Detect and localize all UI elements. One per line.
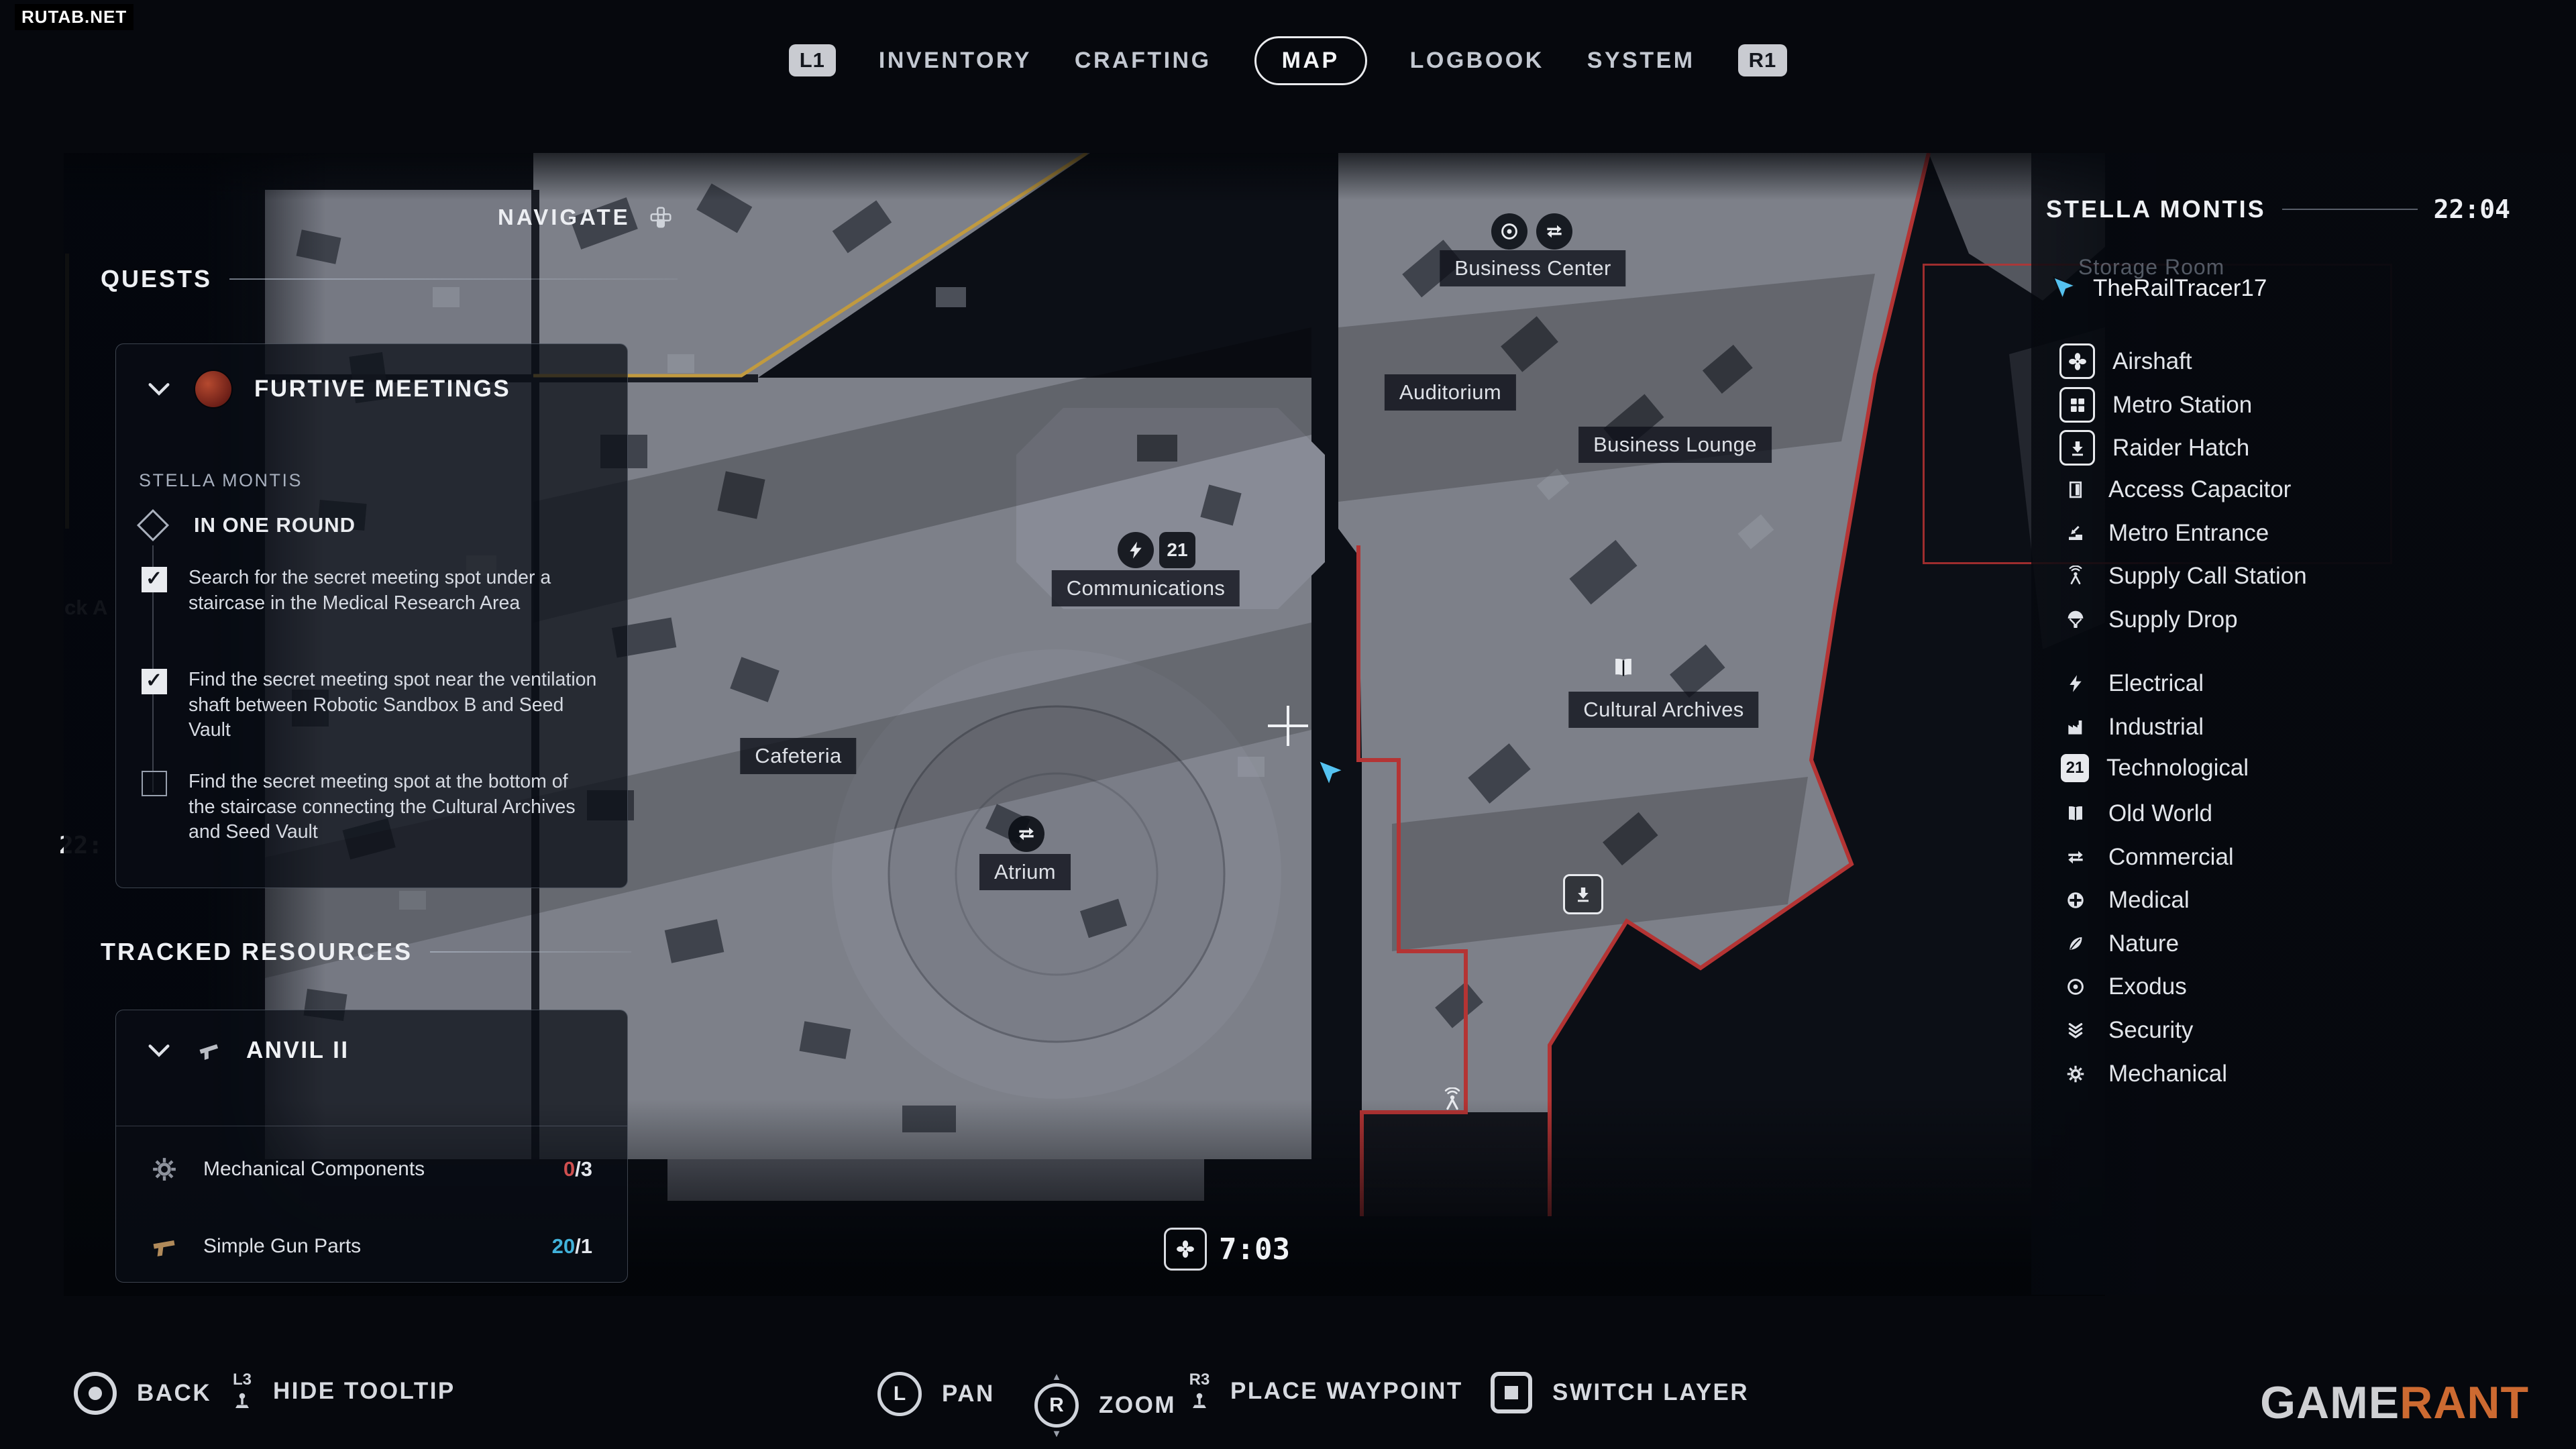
hatch-icon — [2059, 430, 2095, 466]
quests-section-title: QUESTS — [101, 265, 212, 293]
antenna-icon — [1440, 1087, 1465, 1113]
navigate-label: NAVIGATE — [498, 205, 631, 230]
resource-group-name: ANVIL II — [246, 1037, 350, 1064]
divider — [2282, 209, 2418, 210]
swap-arrows-icon — [2059, 841, 2091, 873]
tech-icon: 21 — [1159, 532, 1195, 568]
right-bumper-button[interactable]: R1 — [1738, 44, 1788, 76]
fan-icon — [2059, 343, 2095, 379]
legend-item-metro-station: Metro Station — [2059, 387, 2252, 423]
region-name: STELLA MONTIS — [2046, 195, 2266, 223]
resource-count: 20/1 — [552, 1234, 592, 1258]
site-watermark: RUTAB.NET — [15, 4, 133, 30]
quest-objective: Find the secret meeting spot at the bott… — [142, 769, 598, 845]
objective-checkbox-checked — [142, 567, 167, 592]
player-marker-row: TheRailTracer17 — [2051, 275, 2267, 302]
switch-layer-button[interactable]: SWITCH LAYER — [1491, 1372, 1749, 1413]
quest-location: STELLA MONTIS — [139, 470, 303, 491]
top-nav: L1 INVENTORY CRAFTING MAP LOGBOOK SYSTEM… — [0, 0, 2576, 121]
quest-objective: Search for the secret meeting spot under… — [142, 566, 598, 616]
circle-button-icon — [74, 1372, 117, 1415]
legend-item-airshaft: Airshaft — [2059, 343, 2192, 379]
grid-icon — [2059, 387, 2095, 423]
controls-bar: BACK L3 HIDE TOOLTIP L PAN ▲ R ▼ ZOOM R3… — [0, 1338, 2576, 1449]
legend-item-raider-hatch: Raider Hatch — [2059, 430, 2249, 466]
resource-count: 0/3 — [563, 1157, 592, 1181]
tab-system[interactable]: SYSTEM — [1587, 48, 1695, 74]
eye-icon — [1491, 213, 1527, 250]
tab-crafting[interactable]: CRAFTING — [1075, 48, 1212, 74]
square-button-icon — [1491, 1372, 1532, 1413]
left-bumper-button[interactable]: L1 — [789, 44, 836, 76]
leaf-icon — [2059, 928, 2091, 959]
resource-row: Simple Gun Parts 20/1 — [150, 1232, 592, 1261]
quest-icon — [195, 371, 231, 407]
legend-item-supply-call-station: Supply Call Station — [2059, 560, 2307, 592]
tracked-resources-card: ANVIL II Mechanical Components 0/3 Simpl… — [115, 1010, 628, 1283]
gun-parts-icon — [148, 1230, 182, 1264]
map-label-business-lounge: Business Lounge — [1578, 427, 1772, 463]
legend-item-metro-entrance: Metro Entrance — [2059, 517, 2269, 549]
resource-group-row[interactable]: ANVIL II — [146, 1037, 350, 1064]
stage-label: IN ONE ROUND — [194, 513, 356, 537]
zoom-button[interactable]: ▲ R ▼ ZOOM — [1034, 1372, 1176, 1439]
chevrons-icon — [2059, 1014, 2091, 1046]
hatch-icon — [1563, 874, 1603, 914]
region-header: STELLA MONTIS 22:04 — [2046, 195, 2553, 224]
antenna-icon — [2059, 560, 2091, 592]
objective-checkbox-unchecked — [142, 771, 167, 796]
weapon-icon — [193, 1034, 225, 1067]
legend-item-exodus: Exodus — [2059, 971, 2187, 1002]
swap-arrows-icon — [1536, 213, 1572, 250]
divider — [229, 278, 678, 280]
back-button[interactable]: BACK — [74, 1372, 211, 1415]
map-label-atrium: Atrium — [979, 854, 1071, 890]
bolt-icon — [1118, 532, 1154, 568]
left-stick-icon: L — [877, 1372, 922, 1416]
gear-icon — [2059, 1058, 2091, 1089]
divider — [116, 1126, 627, 1126]
resource-row: Mechanical Components 0/3 — [150, 1155, 592, 1184]
map-label-auditorium: Auditorium — [1385, 374, 1516, 411]
brand-watermark: GAMERANT — [2260, 1377, 2529, 1429]
divider — [430, 951, 631, 953]
region-time: 22:04 — [2434, 195, 2510, 224]
map-label-cultural-archives: Cultural Archives — [1568, 692, 1758, 728]
legend-item-technological: 21 Technological — [2059, 754, 2249, 782]
tab-inventory[interactable]: INVENTORY — [879, 48, 1032, 74]
quest-card: FURTIVE MEETINGS STELLA MONTIS IN ONE RO… — [115, 343, 628, 888]
tracked-resources-title: TRACKED RESOURCES — [101, 938, 413, 966]
chevron-down-icon[interactable] — [146, 1037, 172, 1064]
book-icon — [1611, 655, 1636, 680]
quest-name: FURTIVE MEETINGS — [254, 376, 511, 402]
legend-item-old-world: Old World — [2059, 798, 2212, 829]
legend-item-access-capacitor: Access Capacitor — [2059, 474, 2291, 505]
corner-arrow-icon — [2059, 517, 2091, 549]
hide-tooltip-button[interactable]: L3 HIDE TOOLTIP — [231, 1372, 455, 1411]
stage-diamond-icon — [137, 509, 169, 541]
pan-button[interactable]: L PAN — [877, 1372, 995, 1416]
legend-item-electrical: Electrical — [2059, 667, 2204, 699]
parachute-icon — [2059, 604, 2091, 635]
legend-item-security: Security — [2059, 1014, 2193, 1046]
legend-item-industrial: Industrial — [2059, 711, 2204, 743]
map-label-cafeteria: Cafeteria — [740, 738, 856, 774]
right-stick-icon: ▲ R ▼ — [1034, 1372, 1079, 1439]
map-label-communications: Communications — [1052, 570, 1240, 606]
bolt-icon — [2059, 667, 2091, 699]
quest-stage-row: IN ONE ROUND — [136, 513, 356, 537]
legend-item-supply-drop: Supply Drop — [2059, 604, 2238, 635]
left-stick-press-icon: L3 — [231, 1372, 253, 1411]
swap-arrows-icon — [1008, 816, 1044, 852]
eye-icon — [2059, 971, 2091, 1002]
map-legend-panel: STELLA MONTIS 22:04 Storage Room TheRail… — [2031, 153, 2576, 1295]
player-name: TheRailTracer17 — [2093, 275, 2267, 302]
dpad-icon — [648, 205, 674, 230]
quest-header-row[interactable]: FURTIVE MEETINGS — [146, 371, 511, 407]
legend-item-commercial: Commercial — [2059, 841, 2234, 873]
player-cursor-icon — [2051, 275, 2078, 302]
gear-icon — [150, 1155, 179, 1184]
tech-icon: 21 — [2061, 754, 2089, 782]
tab-map[interactable]: MAP — [1254, 36, 1367, 85]
book-icon — [2059, 798, 2091, 829]
tab-logbook[interactable]: LOGBOOK — [1410, 48, 1544, 74]
medical-cross-icon — [2059, 884, 2091, 916]
place-waypoint-button[interactable]: R3 PLACE WAYPOINT — [1189, 1372, 1463, 1411]
map-label-business-center: Business Center — [1440, 250, 1625, 286]
legend-item-mechanical: Mechanical — [2059, 1058, 2227, 1089]
player-cursor-icon — [1316, 758, 1347, 789]
legend-item-nature: Nature — [2059, 928, 2179, 959]
factory-icon — [2059, 711, 2091, 743]
legend-item-medical: Medical — [2059, 884, 2190, 916]
objective-checkbox-checked — [142, 669, 167, 694]
navigate-hint: NAVIGATE — [498, 205, 674, 230]
timer-value: 7:03 — [1219, 1232, 1290, 1267]
fan-icon — [1164, 1228, 1207, 1271]
quest-objective: Find the secret meeting spot near the ve… — [142, 667, 598, 743]
right-stick-press-icon: R3 — [1189, 1372, 1210, 1411]
door-icon — [2059, 474, 2091, 505]
airshaft-timer: 7:03 — [1164, 1228, 1290, 1271]
chevron-down-icon[interactable] — [146, 376, 172, 402]
